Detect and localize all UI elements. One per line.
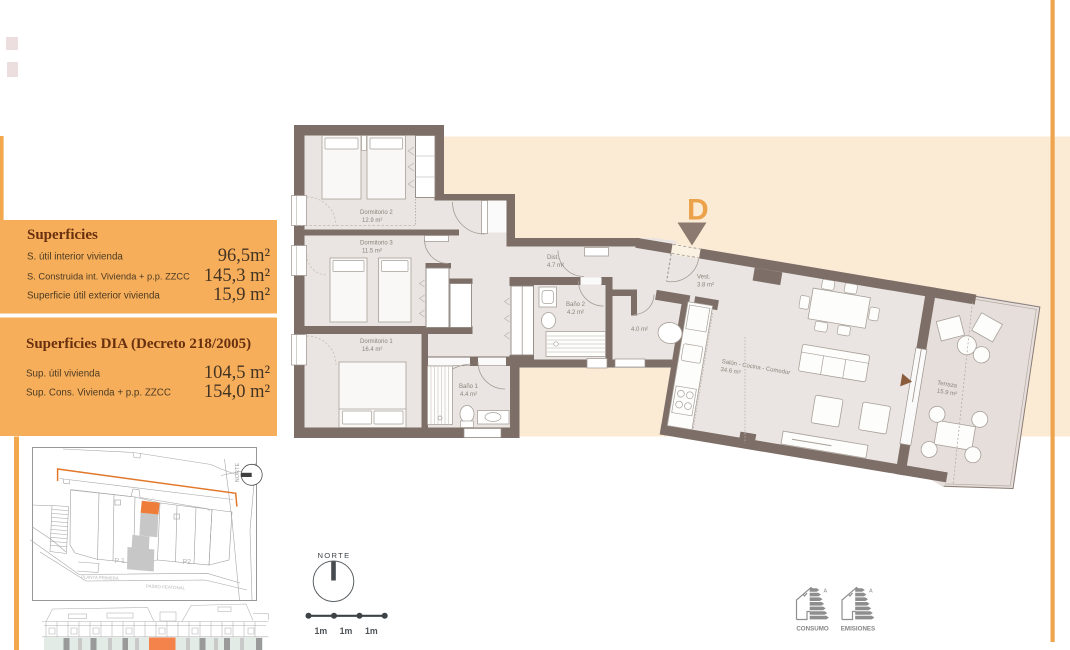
svg-text:Dormitorio 3: Dormitorio 3 <box>360 241 393 247</box>
svg-text:Baño 1: Baño 1 <box>459 384 479 390</box>
svg-text:154,0 m²: 154,0 m² <box>204 382 271 402</box>
svg-text:16.4 m²: 16.4 m² <box>362 347 382 353</box>
svg-text:D: D <box>687 194 709 227</box>
svg-text:Sup. útil vivienda: Sup. útil vivienda <box>26 369 101 380</box>
svg-text:11.5 m²: 11.5 m² <box>362 249 382 255</box>
svg-text:Dormitorio 2: Dormitorio 2 <box>360 210 393 216</box>
svg-text:P 1: P 1 <box>115 558 125 565</box>
svg-text:4.2 m²: 4.2 m² <box>567 310 584 316</box>
svg-text:96,5m²: 96,5m² <box>218 246 271 266</box>
svg-text:Dormitorio 1: Dormitorio 1 <box>360 339 393 345</box>
svg-text:A: A <box>824 589 828 595</box>
svg-text:104,5 m²: 104,5 m² <box>204 363 271 383</box>
svg-text:1m: 1m <box>340 626 353 636</box>
svg-text:NORTE: NORTE <box>318 551 351 560</box>
svg-text:Vest.: Vest. <box>697 275 711 281</box>
svg-text:3.8 m²: 3.8 m² <box>697 283 714 289</box>
svg-text:Superficies: Superficies <box>27 227 98 243</box>
svg-text:A: A <box>869 589 873 595</box>
svg-text:NORTE: NORTE <box>235 462 241 482</box>
svg-text:Superficies DIA (Decreto 218/2: Superficies DIA (Decreto 218/2005) <box>26 336 251 352</box>
svg-text:15,9 m²: 15,9 m² <box>213 285 270 305</box>
svg-text:4.0 m²: 4.0 m² <box>631 327 648 333</box>
svg-text:CONSUMO: CONSUMO <box>796 626 828 633</box>
svg-text:Dist.: Dist. <box>547 255 559 261</box>
svg-text:1m: 1m <box>314 626 327 636</box>
svg-text:145,3 m²: 145,3 m² <box>204 266 271 286</box>
svg-text:S. Construida int. Vivienda +: S. Construida int. Vivienda + p.p. ZZCC <box>27 272 190 282</box>
svg-text:P2: P2 <box>183 559 192 566</box>
svg-text:Sup. Cons. Vivienda + p.p. ZZC: Sup. Cons. Vivienda + p.p. ZZCC <box>26 388 171 399</box>
svg-text:4.7 m²: 4.7 m² <box>547 263 564 269</box>
svg-text:1m: 1m <box>365 626 378 636</box>
svg-text:4.4 m²: 4.4 m² <box>460 392 477 398</box>
svg-text:12.9 m²: 12.9 m² <box>362 218 382 224</box>
svg-text:Superficie útil exterior vivie: Superficie útil exterior vivienda <box>27 291 160 302</box>
svg-text:S. útil interior vivienda: S. útil interior vivienda <box>27 252 123 263</box>
svg-text:Baño 2: Baño 2 <box>566 302 586 308</box>
svg-text:EMISIONES: EMISIONES <box>841 626 875 633</box>
